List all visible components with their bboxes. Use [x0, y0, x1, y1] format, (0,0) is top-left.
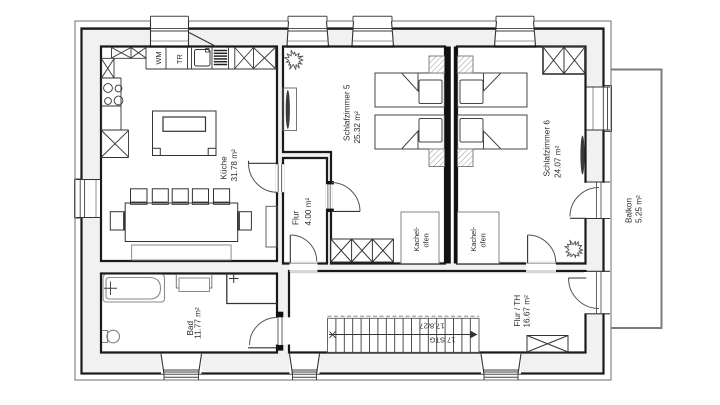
svg-text:Schlafzimmer 6: Schlafzimmer 6: [542, 120, 551, 177]
svg-text:Küche: Küche: [219, 156, 228, 180]
svg-text:Kachel-: Kachel-: [412, 226, 421, 251]
svg-text:Schlafzimmer 5: Schlafzimmer 5: [343, 84, 352, 141]
svg-text:17 STG: 17 STG: [429, 336, 455, 345]
svg-text:17,8/27: 17,8/27: [419, 322, 444, 331]
svg-text:11.77 m²: 11.77 m²: [193, 307, 202, 339]
svg-text:31.78 m²: 31.78 m²: [230, 149, 239, 182]
svg-text:ofen: ofen: [422, 233, 431, 247]
svg-text:Flur / TH: Flur / TH: [513, 295, 522, 327]
svg-text:WM: WM: [154, 52, 163, 65]
svg-text:4.00 m²: 4.00 m²: [304, 197, 313, 225]
svg-text:16.67 m²: 16.67 m²: [523, 295, 532, 328]
svg-text:24.07 m²: 24.07 m²: [554, 145, 563, 178]
svg-text:Flur: Flur: [291, 211, 300, 225]
svg-text:Balkon: Balkon: [625, 198, 634, 223]
svg-text:25.32 m²: 25.32 m²: [353, 111, 362, 144]
svg-text:Kachel-: Kachel-: [469, 226, 478, 251]
svg-text:ofen: ofen: [479, 233, 488, 247]
svg-text:TR: TR: [175, 54, 184, 64]
svg-text:5.25 m²: 5.25 m²: [634, 195, 643, 223]
